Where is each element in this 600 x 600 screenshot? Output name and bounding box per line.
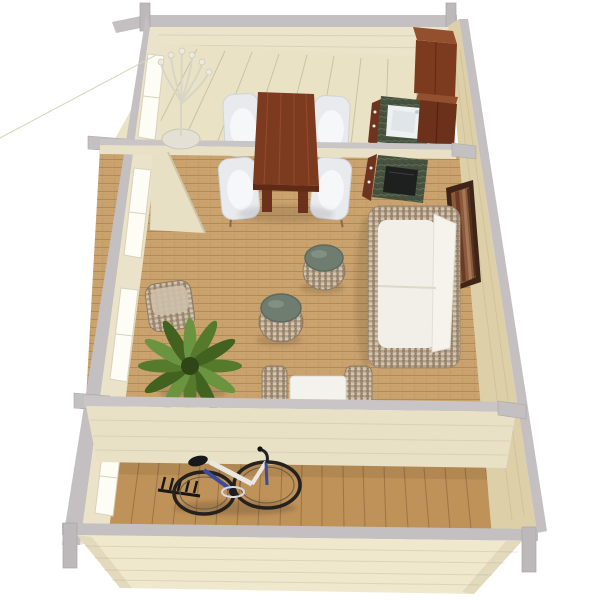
counter-knob bbox=[370, 167, 373, 170]
plant-center bbox=[181, 357, 199, 375]
log-end-right bbox=[452, 143, 476, 159]
handlebar-grip bbox=[257, 446, 262, 451]
partition-wall-terrace bbox=[74, 393, 526, 468]
counter-knob bbox=[373, 125, 376, 128]
stool-top bbox=[261, 294, 301, 322]
dining-set-shadow bbox=[238, 205, 334, 223]
round-stool bbox=[256, 294, 303, 346]
counter-knob bbox=[368, 181, 371, 184]
table-leg bbox=[298, 189, 308, 213]
sofa-seat-cushions bbox=[378, 220, 436, 348]
side-pouf-left bbox=[262, 366, 287, 404]
side-pouf-right bbox=[345, 366, 372, 404]
garden-house-3d-view: 3D top-down floor plan render of a woode… bbox=[0, 0, 600, 600]
sink-faucet bbox=[415, 110, 419, 114]
back-wall-top-edge bbox=[146, 15, 457, 27]
cooktop bbox=[383, 166, 418, 196]
corner-post-bottom-left bbox=[63, 523, 77, 568]
stool-top bbox=[305, 245, 343, 271]
front-wall bbox=[62, 523, 538, 594]
floorplan-render: 3D top-down floor plan render of a woode… bbox=[0, 0, 600, 600]
terrace-floor bbox=[84, 460, 518, 532]
square-pouf-top bbox=[150, 285, 190, 317]
counter-knob bbox=[374, 111, 377, 114]
tall-cabinet bbox=[413, 27, 458, 146]
kitchen-sink-basin bbox=[391, 110, 416, 133]
table-leg bbox=[262, 188, 272, 212]
crank bbox=[229, 488, 237, 496]
corner-post-bottom-right bbox=[522, 527, 536, 572]
round-stool bbox=[300, 245, 345, 294]
wicker-sofa bbox=[355, 206, 460, 368]
